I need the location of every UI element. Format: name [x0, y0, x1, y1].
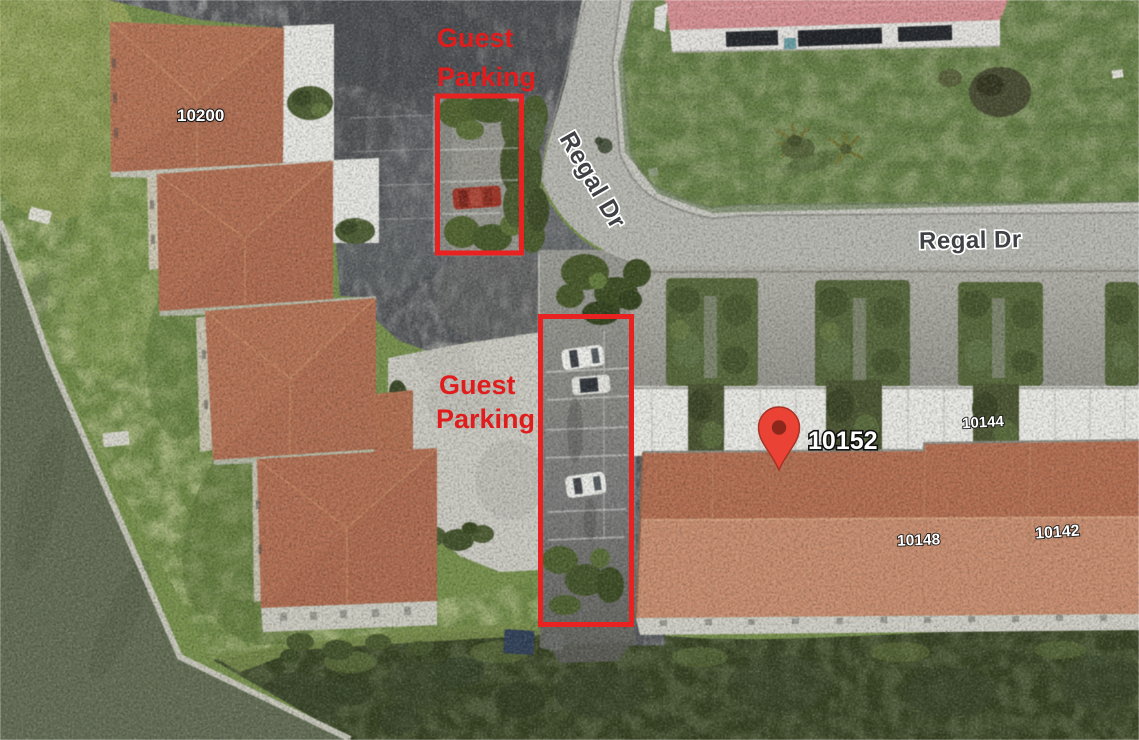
- svg-text:Parking: Parking: [436, 404, 535, 434]
- svg-text:10148: 10148: [897, 531, 941, 550]
- svg-text:10152: 10152: [808, 427, 878, 455]
- svg-text:10142: 10142: [1035, 523, 1081, 543]
- svg-text:Guest: Guest: [439, 370, 516, 400]
- svg-text:10200: 10200: [177, 106, 224, 125]
- svg-text:10144: 10144: [962, 413, 1005, 432]
- svg-text:Guest: Guest: [437, 23, 514, 53]
- svg-text:Regal Dr: Regal Dr: [919, 226, 1022, 255]
- svg-text:Parking: Parking: [437, 62, 536, 92]
